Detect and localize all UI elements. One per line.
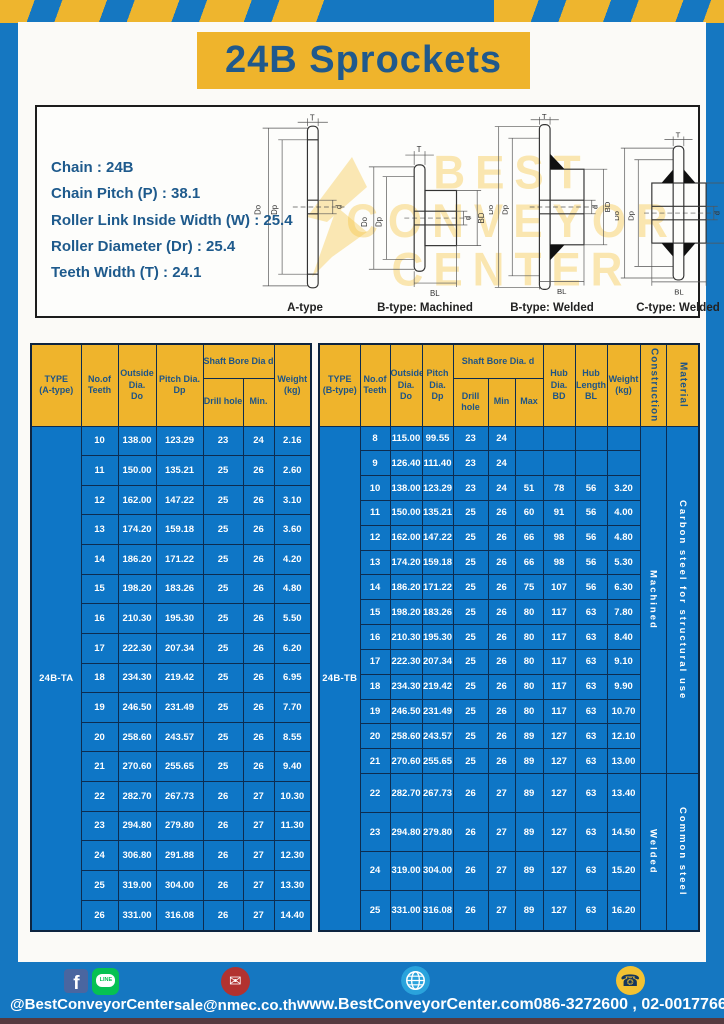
drawings-row: Do Dp d T A-type	[249, 111, 692, 314]
data-cell: 26	[203, 811, 243, 841]
data-cell: 25	[203, 485, 243, 515]
data-cell: 3.60	[274, 515, 311, 545]
data-cell: 2.16	[274, 426, 311, 456]
data-cell: 6.95	[274, 663, 311, 693]
data-cell: 26	[488, 724, 515, 749]
data-cell: 123.29	[422, 476, 453, 501]
data-cell: 98	[543, 525, 575, 550]
data-cell: 26	[488, 525, 515, 550]
data-cell: 115.00	[390, 426, 422, 451]
data-cell: 63	[575, 813, 607, 852]
data-cell: 26	[203, 870, 243, 900]
col-header-hub-dia: Hub Dia. BD	[543, 344, 575, 426]
data-cell: 26	[203, 841, 243, 871]
data-cell	[543, 451, 575, 476]
data-cell: 26	[453, 890, 488, 931]
data-cell: 27	[488, 813, 515, 852]
svg-text:T: T	[417, 145, 422, 154]
data-cell: 117	[543, 600, 575, 625]
data-cell: 63	[575, 699, 607, 724]
data-cell: 89	[515, 813, 543, 852]
data-cell: 19	[81, 693, 118, 723]
data-cell	[575, 451, 607, 476]
data-cell: 231.49	[156, 693, 203, 723]
construction-cell: Welded	[640, 774, 666, 931]
data-cell: 63	[575, 625, 607, 650]
data-cell: 25	[203, 752, 243, 782]
data-cell: 25	[360, 890, 390, 931]
col-header-min: Min	[488, 378, 515, 426]
data-cell: 267.73	[156, 782, 203, 812]
drawing-caption: A-type	[287, 302, 323, 314]
data-cell: 25	[203, 693, 243, 723]
data-cell: 16	[81, 604, 118, 634]
data-cell: 18	[81, 663, 118, 693]
data-cell: 9.40	[274, 752, 311, 782]
data-cell: 222.30	[390, 649, 422, 674]
data-cell: 6.20	[274, 633, 311, 663]
data-cell: 26	[453, 851, 488, 890]
data-cell: 63	[575, 724, 607, 749]
data-cell: 25	[453, 724, 488, 749]
data-cell: 56	[575, 500, 607, 525]
data-cell: 63	[575, 890, 607, 931]
a-type-table: TYPE (A-type) No.of Teeth Outside Dia. D…	[30, 343, 312, 932]
data-cell: 89	[515, 774, 543, 813]
header-stripes-right	[494, 0, 724, 23]
data-cell: 138.00	[390, 476, 422, 501]
data-cell: 26	[203, 782, 243, 812]
data-cell: 26	[488, 500, 515, 525]
line-icon: LINE	[92, 968, 119, 995]
data-cell: 7.80	[607, 600, 640, 625]
material-cell: Common steel	[666, 774, 699, 931]
data-cell: 234.30	[118, 663, 156, 693]
data-cell: 19	[360, 699, 390, 724]
data-cell: 51	[515, 476, 543, 501]
data-cell: 56	[575, 525, 607, 550]
data-cell: 25	[203, 722, 243, 752]
data-cell: 98	[543, 550, 575, 575]
chain-specs: Chain : 24B Chain Pitch (P) : 38.1 Rolle…	[51, 155, 293, 286]
data-cell: 63	[575, 649, 607, 674]
data-cell: 14	[81, 545, 118, 575]
data-cell: 246.50	[118, 693, 156, 723]
footer-phone-group: ☎ 086-3272600 , 02-0017766	[534, 966, 724, 1014]
data-cell: 99.55	[422, 426, 453, 451]
data-cell: 171.22	[422, 575, 453, 600]
data-cell: 24	[488, 426, 515, 451]
data-cell	[575, 426, 607, 451]
footer-contact-bar: f LINE @BestConveyorCenter ✉ sale@nmec.c…	[0, 962, 724, 1018]
data-cell: 117	[543, 674, 575, 699]
data-cell: 25	[453, 600, 488, 625]
data-cell: 15.20	[607, 851, 640, 890]
construction-cell: Machined	[640, 426, 666, 774]
data-cell: 127	[543, 724, 575, 749]
data-cell: 56	[575, 575, 607, 600]
content-sheet: 24B Sprockets BEST CONVEYOR CENTER Chain…	[18, 22, 706, 962]
data-cell: 3.10	[274, 485, 311, 515]
svg-text:Dp: Dp	[500, 205, 509, 215]
data-cell: 174.20	[118, 515, 156, 545]
data-cell: 25	[453, 649, 488, 674]
data-cell: 26	[488, 699, 515, 724]
data-cell: 78	[543, 476, 575, 501]
data-cell: 14	[360, 575, 390, 600]
data-cell: 4.80	[607, 525, 640, 550]
data-cell: 89	[515, 890, 543, 931]
data-cell: 12.30	[274, 841, 311, 871]
data-cell: 63	[575, 851, 607, 890]
data-cell: 14.50	[607, 813, 640, 852]
data-cell: 25	[203, 574, 243, 604]
data-cell: 10.30	[274, 782, 311, 812]
data-cell: 60	[515, 500, 543, 525]
svg-text:T: T	[542, 113, 547, 121]
data-cell: 4.80	[274, 574, 311, 604]
data-cell: 26	[243, 485, 274, 515]
data-cell: 8	[360, 426, 390, 451]
data-cell: 26	[243, 752, 274, 782]
data-cell: 26	[453, 774, 488, 813]
data-cell: 23	[453, 426, 488, 451]
page-title: 24B Sprockets	[225, 39, 502, 82]
col-header-shaft: Shaft Bore Dia. d	[453, 344, 543, 378]
phone-numbers: 086-3272600 , 02-0017766	[534, 996, 724, 1014]
data-cell: 5.50	[274, 604, 311, 634]
data-cell: 127	[543, 851, 575, 890]
svg-text:Dp: Dp	[626, 211, 635, 221]
spec-line: Roller Link Inside Width (W) : 25.4	[51, 208, 293, 234]
data-cell	[515, 426, 543, 451]
data-cell: 147.22	[156, 485, 203, 515]
col-header-type: TYPE (A-type)	[31, 344, 81, 426]
data-cell: 26	[488, 625, 515, 650]
data-cell: 23	[453, 451, 488, 476]
data-cell: 24	[488, 451, 515, 476]
data-cell: 267.73	[422, 774, 453, 813]
col-header-min: Min.	[243, 378, 274, 426]
data-cell: 25	[453, 625, 488, 650]
data-cell: 294.80	[118, 811, 156, 841]
table-row: 24B-TB8115.0099.552324MachinedCarbon ste…	[319, 426, 699, 451]
data-cell: 13	[81, 515, 118, 545]
data-cell: 23	[360, 813, 390, 852]
data-cell: 207.34	[156, 633, 203, 663]
data-cell: 135.21	[156, 456, 203, 486]
data-cell: 80	[515, 649, 543, 674]
data-cell: 4.20	[274, 545, 311, 575]
data-cell: 255.65	[156, 752, 203, 782]
data-cell: 10	[360, 476, 390, 501]
data-cell: 13.40	[607, 774, 640, 813]
data-cell: 24	[488, 476, 515, 501]
svg-text:Dp: Dp	[375, 216, 384, 227]
data-cell: 150.00	[390, 500, 422, 525]
type-cell: 24B-TA	[31, 426, 81, 931]
data-cell: 25	[453, 699, 488, 724]
data-cell: 27	[243, 782, 274, 812]
data-cell: 27	[243, 811, 274, 841]
data-cell: 107	[543, 575, 575, 600]
website-url: www.BestConveyorCenter.com	[297, 996, 534, 1014]
data-cell: 183.26	[156, 574, 203, 604]
data-cell: 25	[203, 545, 243, 575]
data-cell: 123.29	[156, 426, 203, 456]
data-cell: 16.20	[607, 890, 640, 931]
col-header-weight: Weight (kg)	[274, 344, 311, 426]
svg-text:Do: Do	[489, 205, 495, 215]
data-cell: 11	[360, 500, 390, 525]
type-cell: 24B-TB	[319, 426, 360, 931]
svg-text:T: T	[676, 130, 681, 139]
data-cell: 22	[81, 782, 118, 812]
data-cell: 25	[453, 674, 488, 699]
col-header-construction: Construction	[640, 344, 666, 426]
b-welded-diagram: Do Dp d BD	[489, 113, 615, 301]
svg-text:d: d	[335, 205, 344, 209]
data-cell: 243.57	[156, 722, 203, 752]
data-cell: 8.40	[607, 625, 640, 650]
data-cell: 171.22	[156, 545, 203, 575]
data-cell: 25	[203, 456, 243, 486]
social-handle: @BestConveyorCenter	[10, 996, 174, 1013]
data-cell: 24	[243, 426, 274, 456]
data-cell: 270.60	[118, 752, 156, 782]
data-cell: 10.70	[607, 699, 640, 724]
data-cell: 135.21	[422, 500, 453, 525]
data-cell: 150.00	[118, 456, 156, 486]
svg-text:BL: BL	[557, 287, 567, 296]
data-cell: 25	[203, 515, 243, 545]
drawing-b-type-welded: Do Dp d BD	[489, 113, 615, 314]
data-cell: 15	[81, 574, 118, 604]
data-cell: 56	[575, 476, 607, 501]
data-cell: 21	[360, 749, 390, 774]
spec-line: Teeth Width (T) : 24.1	[51, 260, 293, 286]
data-cell: 127	[543, 813, 575, 852]
data-cell: 63	[575, 749, 607, 774]
data-cell: 18	[360, 674, 390, 699]
data-cell	[607, 426, 640, 451]
data-cell: 117	[543, 699, 575, 724]
data-cell: 5.30	[607, 550, 640, 575]
data-cell: 2.60	[274, 456, 311, 486]
col-header-drill: Drill hole	[453, 378, 488, 426]
data-cell: 159.18	[422, 550, 453, 575]
data-cell: 27	[488, 851, 515, 890]
data-cell: 111.40	[422, 451, 453, 476]
data-cell: 27	[488, 890, 515, 931]
drawing-caption: B-type: Machined	[377, 302, 473, 314]
data-cell: 159.18	[156, 515, 203, 545]
data-cell: 243.57	[422, 724, 453, 749]
table-row: 22282.70267.732627891276313.40WeldedComm…	[319, 774, 699, 813]
data-cell: 210.30	[118, 604, 156, 634]
data-cell: 127	[543, 890, 575, 931]
data-cell: 56	[575, 550, 607, 575]
data-cell: 26	[488, 749, 515, 774]
data-cell: 12.10	[607, 724, 640, 749]
svg-text:Do: Do	[361, 216, 369, 227]
phone-icon: ☎	[616, 966, 645, 995]
data-cell: 26	[453, 813, 488, 852]
catalog-page: 24B Sprockets BEST CONVEYOR CENTER Chain…	[0, 0, 724, 1024]
col-header-drill: Drill hole	[203, 378, 243, 426]
data-cell: 246.50	[390, 699, 422, 724]
data-cell: 17	[81, 633, 118, 663]
title-banner: 24B Sprockets	[197, 32, 530, 89]
data-cell: 25	[203, 663, 243, 693]
data-cell: 9.10	[607, 649, 640, 674]
col-header-type: TYPE (B-type)	[319, 344, 360, 426]
data-cell: 331.00	[118, 900, 156, 931]
data-cell: 198.20	[118, 574, 156, 604]
data-cell: 127	[543, 774, 575, 813]
data-cell: 4.00	[607, 500, 640, 525]
data-cell: 147.22	[422, 525, 453, 550]
data-cell: 316.08	[156, 900, 203, 931]
data-cell: 304.00	[422, 851, 453, 890]
data-cell: 210.30	[390, 625, 422, 650]
data-cell: 27	[243, 870, 274, 900]
data-cell: 25	[453, 500, 488, 525]
svg-text:BL: BL	[430, 289, 440, 298]
data-cell: 26	[81, 900, 118, 931]
data-cell: 222.30	[118, 633, 156, 663]
col-header-pitch: Pitch Dia. Dp	[156, 344, 203, 426]
col-header-teeth: No.of Teeth	[81, 344, 118, 426]
data-cell	[607, 451, 640, 476]
data-cell: 294.80	[390, 813, 422, 852]
data-cell: 316.08	[422, 890, 453, 931]
data-cell: 13	[360, 550, 390, 575]
data-cell	[543, 426, 575, 451]
data-cell: 183.26	[422, 600, 453, 625]
data-cell: 20	[81, 722, 118, 752]
data-cell: 198.20	[390, 600, 422, 625]
c-welded-diagram: Do Dp d BD	[615, 129, 724, 301]
data-cell: 26	[243, 545, 274, 575]
facebook-icon: f	[64, 969, 88, 993]
data-cell: 26	[243, 515, 274, 545]
b-machined-diagram: Do Dp d BD T	[361, 143, 489, 301]
data-cell: 89	[515, 749, 543, 774]
data-cell: 291.88	[156, 841, 203, 871]
col-header-teeth: No.of Teeth	[360, 344, 390, 426]
data-cell: 27	[488, 774, 515, 813]
data-cell: 25	[453, 525, 488, 550]
col-header-outside: Outside Dia. Do	[118, 344, 156, 426]
data-cell: 66	[515, 550, 543, 575]
data-cell: 26	[203, 900, 243, 931]
data-cell: 234.30	[390, 674, 422, 699]
data-cell: 207.34	[422, 649, 453, 674]
social-icons: f LINE	[64, 968, 119, 995]
svg-text:BD: BD	[477, 212, 486, 223]
drawing-caption: C-type: Welded	[636, 302, 720, 314]
data-cell: 89	[515, 724, 543, 749]
data-cell: 66	[515, 525, 543, 550]
data-cell: 127	[543, 749, 575, 774]
svg-text:d: d	[591, 205, 600, 209]
data-cell: 75	[515, 575, 543, 600]
data-cell: 7.70	[274, 693, 311, 723]
data-cell: 126.40	[390, 451, 422, 476]
data-cell: 24	[360, 851, 390, 890]
footer-bottom-strip	[0, 1018, 724, 1024]
data-cell: 26	[243, 456, 274, 486]
data-cell: 27	[243, 841, 274, 871]
svg-text:d: d	[463, 216, 472, 220]
data-cell: 186.20	[390, 575, 422, 600]
data-cell: 80	[515, 674, 543, 699]
material-cell: Carbon steel for structural use	[666, 426, 699, 774]
data-cell: 17	[360, 649, 390, 674]
data-cell: 80	[515, 625, 543, 650]
data-cell: 89	[515, 851, 543, 890]
data-cell: 117	[543, 625, 575, 650]
data-cell: 195.30	[156, 604, 203, 634]
data-cell: 26	[488, 674, 515, 699]
svg-text:Do: Do	[615, 211, 621, 221]
data-cell: 9	[360, 451, 390, 476]
col-header-material: Material	[666, 344, 699, 426]
data-cell: 24	[81, 841, 118, 871]
spec-line: Chain Pitch (P) : 38.1	[51, 181, 293, 207]
data-cell: 3.20	[607, 476, 640, 501]
data-cell: 138.00	[118, 426, 156, 456]
data-cell: 270.60	[390, 749, 422, 774]
data-cell: 25	[203, 633, 243, 663]
data-cell: 258.60	[390, 724, 422, 749]
data-cell: 22	[360, 774, 390, 813]
data-cell: 15	[360, 600, 390, 625]
email-address: sale@nmec.co.th	[174, 997, 297, 1014]
data-cell: 195.30	[422, 625, 453, 650]
col-header-weight: Weight (kg)	[607, 344, 640, 426]
data-cell: 8.55	[274, 722, 311, 752]
header-stripes-left	[0, 0, 340, 23]
data-cell: 231.49	[422, 699, 453, 724]
data-cell: 219.42	[156, 663, 203, 693]
data-cell: 14.40	[274, 900, 311, 931]
data-cell: 11.30	[274, 811, 311, 841]
data-cell: 319.00	[118, 870, 156, 900]
footer-website-group: www.BestConveyorCenter.com	[297, 966, 534, 1014]
spec-line: Chain : 24B	[51, 155, 293, 181]
data-cell: 10	[81, 426, 118, 456]
data-cell	[515, 451, 543, 476]
data-cell: 306.80	[118, 841, 156, 871]
data-cell: 16	[360, 625, 390, 650]
globe-icon	[401, 966, 430, 995]
data-cell: 6.30	[607, 575, 640, 600]
data-cell: 279.80	[422, 813, 453, 852]
svg-text:BD: BD	[603, 201, 612, 212]
data-cell: 258.60	[118, 722, 156, 752]
data-cell: 26	[488, 649, 515, 674]
data-cell: 26	[243, 633, 274, 663]
data-cell: 26	[243, 604, 274, 634]
data-cell: 13.00	[607, 749, 640, 774]
data-cell: 174.20	[390, 550, 422, 575]
data-cell: 25	[203, 604, 243, 634]
data-cell: 26	[488, 575, 515, 600]
data-cell: 117	[543, 649, 575, 674]
table-row: 24B-TA10138.00123.2923242.16	[31, 426, 311, 456]
